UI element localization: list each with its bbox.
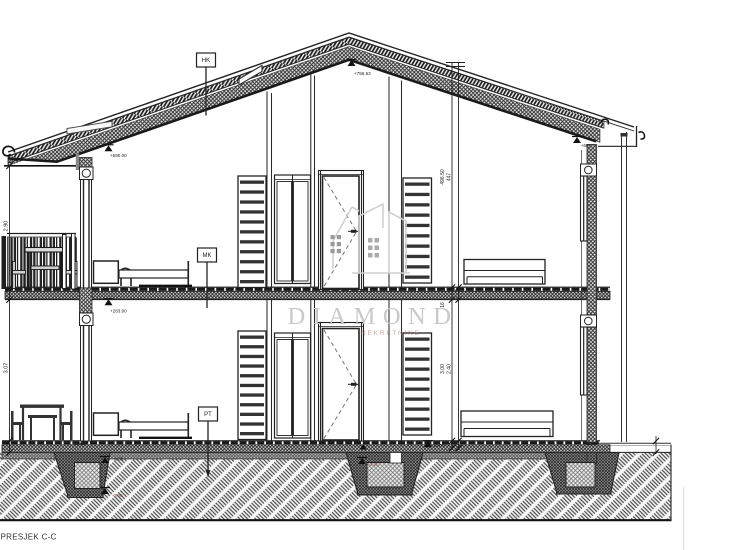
svg-text:PRESJEK C-C: PRESJEK C-C: [1, 533, 57, 542]
svg-text:-0.05: -0.05: [113, 457, 124, 462]
svg-text:3.00: 3.00: [440, 364, 446, 374]
svg-text:-0.90: -0.90: [368, 462, 379, 467]
svg-text:+756.53: +756.53: [354, 71, 371, 76]
svg-text:PT: PT: [204, 412, 212, 418]
svg-text:2.40: 2.40: [447, 364, 453, 374]
svg-text:±0.00: ±0.00: [433, 443, 445, 448]
svg-text:HK: HK: [202, 58, 210, 64]
svg-text:+607: +607: [581, 143, 591, 148]
svg-text:N E K R E T N I N E: N E K R E T N I N E: [361, 330, 420, 337]
svg-text:3.07: 3.07: [4, 363, 10, 374]
svg-text:-0.90: -0.90: [112, 493, 123, 498]
svg-text:2.90: 2.90: [4, 221, 10, 232]
svg-text:DIAMOND: DIAMOND: [288, 303, 459, 330]
svg-text:496.50: 496.50: [440, 169, 446, 185]
svg-text:447: 447: [447, 173, 453, 182]
svg-text:+283.00: +283.00: [110, 309, 127, 314]
svg-text:MK: MK: [203, 253, 212, 259]
svg-text:+590.00: +590.00: [110, 153, 127, 158]
